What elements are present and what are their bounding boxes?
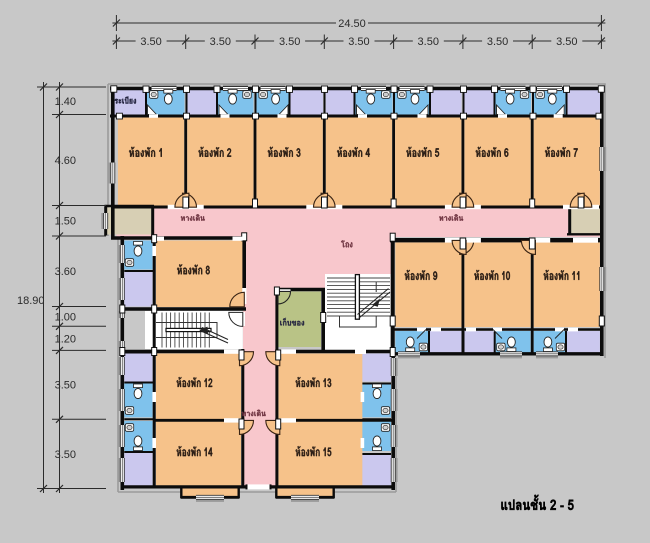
svg-text:3.50: 3.50	[348, 36, 369, 48]
svg-text:3.50: 3.50	[55, 380, 76, 392]
svg-text:3.50: 3.50	[418, 36, 439, 48]
svg-text:4.60: 4.60	[55, 155, 76, 167]
svg-text:3.50: 3.50	[487, 36, 508, 48]
svg-text:1.50: 1.50	[55, 216, 76, 228]
svg-text:3.50: 3.50	[55, 449, 76, 461]
svg-text:3.50: 3.50	[556, 36, 577, 48]
svg-text:3.50: 3.50	[279, 36, 300, 48]
svg-text:3.60: 3.60	[55, 266, 76, 278]
svg-text:1.20: 1.20	[55, 334, 76, 346]
svg-text:18.90: 18.90	[17, 295, 45, 307]
svg-text:1.00: 1.00	[55, 311, 76, 323]
svg-text:24.50: 24.50	[338, 18, 366, 30]
svg-text:1.40: 1.40	[55, 96, 76, 108]
svg-text:3.50: 3.50	[140, 36, 161, 48]
svg-text:3.50: 3.50	[210, 36, 231, 48]
